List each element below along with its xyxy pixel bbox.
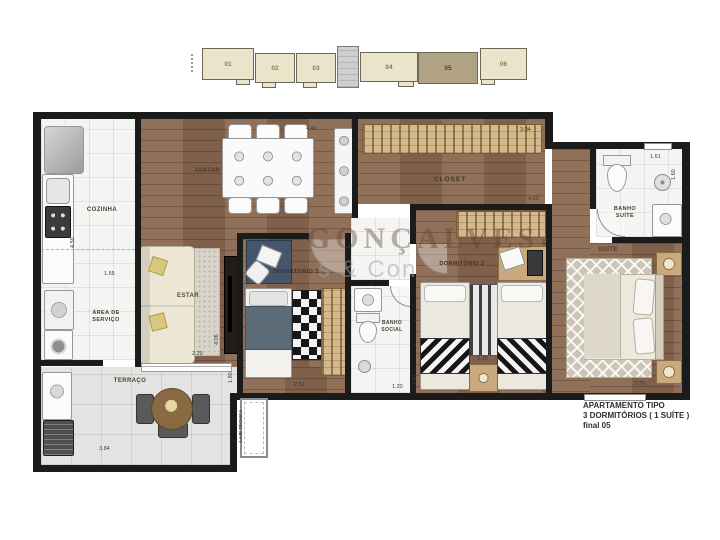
keyplan-unit-05-highlighted: 05	[418, 52, 478, 84]
unit-number: 02	[271, 65, 278, 72]
dorm3-depth-dim: 1.80	[228, 372, 234, 383]
wall-banho-suite-left	[590, 149, 596, 209]
dorm2-depth-dim: 2.40	[412, 374, 418, 385]
estar-label: ESTAR	[163, 293, 213, 300]
dorm3-bed-pillow	[249, 291, 288, 306]
unit-number: 06	[500, 61, 507, 68]
wall-dorm2-left-upper	[410, 204, 416, 244]
terrace-chair-right	[192, 394, 210, 424]
washing-machine	[44, 330, 73, 360]
cozinha-servico-divider	[41, 249, 135, 250]
unit-number: 05	[444, 65, 451, 72]
estar-depth-dim: 4.06	[214, 334, 220, 345]
cozinha-pass-dim: 1.55	[104, 271, 115, 277]
suite-bed-blanket	[584, 274, 621, 358]
keyplan-elevator-core	[337, 46, 359, 88]
dorm3-wardrobe	[321, 288, 346, 376]
wall-servico-estar	[135, 283, 141, 367]
dining-chair	[228, 197, 252, 214]
closet-label: CLOSET	[418, 176, 482, 183]
wall-dorm2-suite	[546, 204, 552, 393]
banho-suite-window	[644, 143, 672, 150]
dorm2-label: DORMITÓRIO 2	[426, 261, 498, 268]
wall-banho-social-top	[351, 280, 389, 286]
banho-social-vanity	[354, 288, 382, 312]
terrace-table	[151, 388, 193, 430]
terrace-counter	[42, 372, 72, 420]
title-line1: APARTAMENTO TIPO	[583, 401, 665, 411]
jantar-label: JANTAR	[182, 168, 232, 175]
suite-label: SUÍTE	[588, 247, 628, 254]
wall-right-outer	[682, 142, 690, 400]
wall-top-outer	[33, 112, 553, 119]
banho-social-label: BANHO SOCIAL	[374, 320, 410, 334]
banho-social-width-dim: 1.20	[392, 384, 403, 390]
keyplan-unit-06: 06	[480, 48, 527, 80]
laje-tecnica-box	[240, 398, 268, 458]
terraco-label: TERRAÇO	[100, 378, 160, 385]
suite-pillow-bottom	[632, 317, 655, 355]
banho-suite-label: BANHO SUÍTE	[604, 206, 646, 220]
estar-width-dim: 2.29	[192, 351, 203, 357]
wall-servico-terraco	[33, 360, 103, 366]
servico-label: ÁREA DE SERVIÇO	[80, 310, 132, 324]
wall-dorm3-right	[345, 233, 351, 393]
dorm2-bed-left-blanket	[420, 338, 470, 374]
suite-pillow-top	[632, 278, 655, 316]
dorm2-width-dim: 2.35	[477, 356, 488, 362]
dorm3-label: DORMITÓRIO 3	[250, 269, 342, 276]
unit-number: 03	[312, 65, 319, 72]
laundry-tank	[44, 290, 74, 330]
kitchen-sink	[46, 178, 70, 204]
banho-suite-vanity	[652, 204, 682, 237]
shower-head	[654, 174, 671, 191]
terrace-sliding-door	[141, 363, 232, 372]
dining-table	[222, 138, 314, 198]
keyplan-street-line	[191, 54, 193, 72]
closet-width-dim: 4.63	[528, 196, 539, 202]
wall-dorm3-top	[237, 233, 309, 239]
suite-nightstand-top	[656, 252, 682, 276]
banho-social-shower-head	[358, 360, 371, 373]
dorm2-bed-right-pillow	[501, 285, 543, 302]
dorm3-width-dim: 2.31	[294, 382, 305, 388]
keyplan-unit-04: 04	[360, 52, 418, 82]
banho-suite-depth-dim: 1.60	[671, 169, 677, 180]
wall-terrace-bottom	[33, 465, 237, 472]
keyplan-unit-03: 03	[296, 53, 336, 83]
wall-cozinha-jantar	[135, 118, 141, 283]
tv-screen	[228, 276, 232, 332]
title-line3: final 05	[583, 421, 611, 431]
dorm3-diamond-rug	[292, 290, 322, 360]
wall-dorm2-top	[410, 204, 552, 210]
dining-chair	[284, 197, 308, 214]
unit-number: 01	[224, 61, 231, 68]
suite-width-dim: 2.70	[634, 381, 645, 387]
jantar-width-dim: 4.40	[306, 126, 317, 132]
title-line2: 3 DORMITÓRIOS ( 1 SUÍTE )	[583, 411, 689, 421]
dorm2-bed-right-blanket	[497, 338, 547, 374]
suite-window	[584, 394, 646, 401]
keyplan-unit-02: 02	[255, 53, 295, 83]
dorm2-wardrobe	[456, 211, 546, 238]
cozinha-depth-dim: 4.59	[70, 237, 76, 248]
keyplan-unit-01: 01	[202, 48, 254, 80]
dorm2-bed-left-pillow	[424, 285, 466, 302]
dorm3-bed-blanket	[245, 306, 292, 350]
sideboard	[334, 128, 354, 214]
banho-suite-width-dim: 1.61	[650, 154, 661, 160]
barbecue-grill	[43, 420, 74, 456]
wall-left-outer	[33, 112, 41, 472]
dorm2-laptop	[527, 250, 543, 276]
unit-number: 04	[385, 64, 392, 71]
fridge	[44, 126, 84, 174]
terraco-width-dim: 3.84	[99, 446, 110, 452]
stove	[45, 206, 71, 238]
wall-jantar-closet	[352, 118, 358, 218]
wall-terrace-right	[230, 393, 237, 472]
dining-chair	[256, 197, 280, 214]
wall-banho-suite-bottom	[612, 237, 682, 243]
closet-right-dim: 3.04	[520, 127, 531, 133]
dorm2-striped-rug	[469, 284, 498, 356]
dorm2-nightstand	[469, 364, 498, 392]
closet-rack	[362, 124, 542, 154]
suite-nightstand-bottom	[656, 360, 682, 384]
hall-floor	[351, 218, 410, 280]
laje-tecnica-label: LAJE TÉCNICA	[237, 402, 244, 450]
cozinha-label: COZINHA	[76, 207, 128, 214]
wall-estar-dorm3	[237, 238, 243, 393]
floorplan-page: 01 02 03 04 05 06	[0, 0, 720, 540]
suite-headboard	[655, 274, 664, 360]
